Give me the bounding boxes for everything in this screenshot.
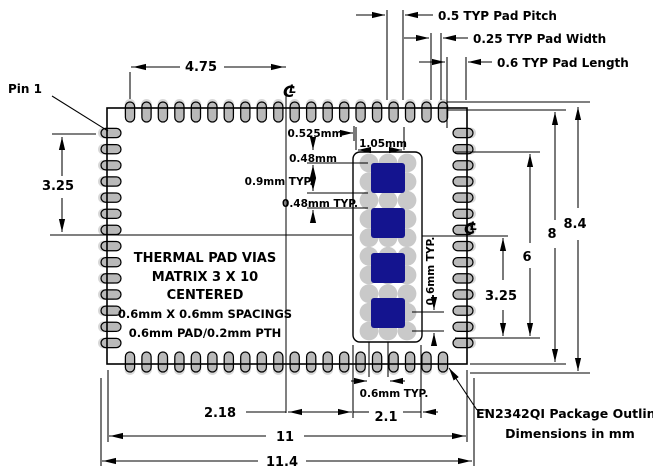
pad (158, 102, 167, 122)
dim-top-span: 4.75 (185, 60, 217, 75)
pad (323, 352, 332, 372)
thermal-note-line1: THERMAL PAD VIAS (134, 251, 276, 266)
pad (208, 102, 217, 122)
pad (241, 352, 250, 372)
pad (142, 352, 151, 372)
paste-square (371, 298, 405, 328)
dim-via-square-height: 0.9mm TYP. (245, 176, 314, 188)
centerline-symbol-top: C L (283, 82, 296, 101)
pad (101, 193, 121, 202)
pad (101, 322, 121, 331)
thermal-note-line2: MATRIX 3 X 10 (152, 270, 258, 285)
pad (356, 102, 365, 122)
dim-bottom-thermal-width: 2.1 (374, 410, 397, 425)
via (379, 191, 398, 210)
pad (406, 352, 415, 372)
pad (191, 352, 200, 372)
via (360, 191, 379, 210)
pad (224, 352, 233, 372)
svg-text:L: L (470, 219, 477, 233)
dim-left-span: 3.25 (42, 179, 74, 194)
pad (101, 274, 121, 283)
dim-via-gap-top: 0.48mm (289, 153, 337, 165)
dim-right-pads: 6 (522, 250, 531, 265)
dim-via-edge: 0.525mm (287, 128, 342, 140)
dim-bottom-center-offset: 2.18 (204, 406, 236, 421)
pad (373, 352, 382, 372)
pad (274, 352, 283, 372)
paste-square (371, 253, 405, 283)
pad (453, 242, 473, 251)
pad (453, 177, 473, 186)
pad (101, 290, 121, 299)
right-pads (453, 128, 476, 349)
dimension-lines (52, 10, 590, 466)
pad (389, 102, 398, 122)
pad (101, 338, 121, 347)
pad (208, 352, 217, 372)
pad (389, 352, 398, 372)
outline-note-line2: Dimensions in mm (505, 426, 635, 441)
pad (241, 102, 250, 122)
drawing-canvas: Pin 1 0.5 TYP Pad Pitch 0.25 TYP Pad Wid… (0, 0, 653, 472)
pad (356, 352, 365, 372)
pad (340, 102, 349, 122)
pad (125, 352, 134, 372)
labels: Pin 1 0.5 TYP Pad Pitch 0.25 TYP Pad Wid… (8, 9, 653, 470)
dim-pad-length: 0.6 TYP Pad Length (497, 56, 629, 70)
dim-right-overall: 8.4 (563, 217, 586, 232)
pad (175, 352, 184, 372)
pad (453, 161, 473, 170)
dim-via-gap-typ: 0.48mm TYP. (282, 198, 358, 210)
pad (406, 102, 415, 122)
outline-note-line1: EN2342QI Package Outline (476, 406, 653, 421)
pad (438, 352, 447, 372)
pad (175, 102, 184, 122)
pad (125, 102, 134, 122)
svg-text:L: L (289, 82, 296, 96)
via (398, 191, 417, 210)
pad (453, 274, 473, 283)
pad (101, 177, 121, 186)
pad (453, 193, 473, 202)
pad (158, 352, 167, 372)
pad (274, 102, 283, 122)
pad (307, 102, 316, 122)
pad (224, 102, 233, 122)
pad (373, 102, 382, 122)
pad (453, 209, 473, 218)
pad (290, 352, 299, 372)
dim-via-pitch-bottom: 0.6mm TYP. (360, 388, 429, 400)
thermal-note-line4: 0.6mm X 0.6mm SPACINGS (118, 307, 292, 321)
pad (257, 352, 266, 372)
pin1-label: Pin 1 (8, 82, 42, 96)
pad (191, 102, 200, 122)
package-outline-drawing: Pin 1 0.5 TYP Pad Pitch 0.25 TYP Pad Wid… (0, 0, 653, 472)
pad (422, 352, 431, 372)
paste-square (371, 208, 405, 238)
dim-right-half: 3.25 (485, 289, 517, 304)
pad (142, 102, 151, 122)
pad (101, 258, 121, 267)
pad (453, 306, 473, 315)
pad (438, 102, 447, 122)
dim-pad-width: 0.25 TYP Pad Width (473, 32, 606, 46)
dim-pad-pitch: 0.5 TYP Pad Pitch (438, 9, 557, 23)
pad (307, 352, 316, 372)
pad (290, 102, 299, 122)
centerline-symbol-right: C L (464, 219, 477, 238)
pad (101, 145, 121, 154)
pad (257, 102, 266, 122)
pad (101, 225, 121, 234)
pad (101, 128, 121, 137)
thermal-note-line3: CENTERED (167, 288, 244, 303)
pad (101, 209, 121, 218)
dim-via-pitch-vertical: 0.6mm TYP. (425, 237, 437, 306)
pad (453, 338, 473, 347)
pad (340, 352, 349, 372)
pad (453, 128, 473, 137)
dim-via-square-width: 1.05mm (359, 138, 407, 150)
paste-square (371, 163, 405, 193)
thermal-note-line5: 0.6mm PAD/0.2mm PTH (129, 326, 282, 340)
pad (453, 258, 473, 267)
pad (101, 242, 121, 251)
dim-bottom-overall: 11.4 (266, 455, 298, 470)
pad (422, 102, 431, 122)
pad (323, 102, 332, 122)
pad (453, 290, 473, 299)
pad (453, 322, 473, 331)
dim-bottom-body: 11 (276, 430, 294, 445)
dim-right-body: 8 (547, 227, 556, 242)
pad (101, 161, 121, 170)
